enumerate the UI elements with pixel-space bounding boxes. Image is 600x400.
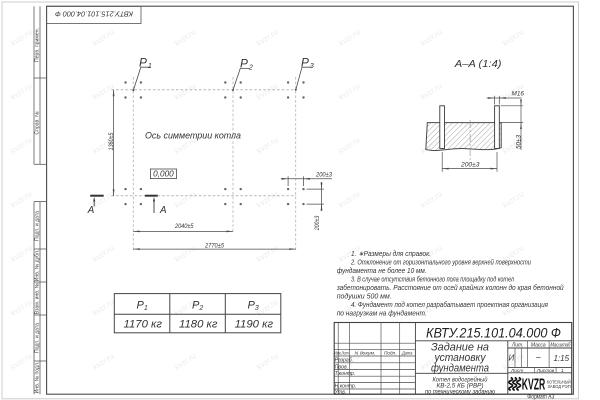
svg-text:A: A — [159, 205, 167, 216]
svg-text:Подп. и дата: Подп. и дата — [35, 211, 41, 241]
svg-text:Изм.: Изм. — [334, 351, 341, 356]
svg-text:подушки 500 мм.: подушки 500 мм. — [337, 293, 392, 301]
svg-text:200±3: 200±3 — [460, 161, 480, 168]
svg-text:1360±5: 1360±5 — [108, 132, 115, 150]
svg-text:Справ. №: Справ. № — [35, 111, 41, 135]
svg-text:Ось симметрии котла: Ось симметрии котла — [145, 130, 241, 140]
svg-text:Инв. № подл.: Инв. № подл. — [35, 362, 41, 394]
svg-text:КВТУ.215.101.04.000 Ф: КВТУ.215.101.04.000 Ф — [426, 325, 561, 340]
svg-text:4. Фундамент под котел разраба: 4. Фундамент под котел разрабатывает про… — [351, 301, 548, 309]
svg-text:Лит.: Лит. — [511, 342, 524, 348]
svg-text:Разраб.: Разраб. — [335, 358, 353, 364]
svg-text:ЗАВОД РЭП: ЗАВОД РЭП — [548, 384, 571, 389]
svg-text:2. Отклонение от горизонтально: 2. Отклонение от горизонтального уровня … — [350, 259, 531, 267]
svg-text:2770±5: 2770±5 — [204, 243, 224, 250]
svg-text:Листов: Листов — [536, 368, 555, 374]
svg-text:0,000: 0,000 — [153, 169, 174, 178]
svg-text:Формат А3: Формат А3 — [527, 393, 554, 400]
svg-text:фундамента не более 10 мм.: фундамента не более 10 мм. — [337, 267, 427, 275]
svg-text:КВТУ.215.101.04.000 Ф: КВТУ.215.101.04.000 Ф — [55, 10, 133, 19]
svg-text:1. ∗Размеры для справок.: 1. ∗Размеры для справок. — [351, 250, 431, 258]
svg-text:по нагрузкам на фундамент.: по нагрузкам на фундамент. — [337, 310, 427, 318]
svg-text:N докум.: N докум. — [355, 351, 376, 356]
svg-text:Лист: Лист — [510, 368, 523, 374]
svg-text:A–A (1:4): A–A (1:4) — [454, 59, 502, 70]
svg-text:Взам. инв. №: Взам. инв. № — [35, 282, 41, 314]
svg-text:200±3: 200±3 — [315, 172, 332, 179]
svg-text:по техническому заданию: по техническому заданию — [425, 388, 495, 395]
svg-text:A: A — [87, 205, 95, 216]
svg-text:Утв.: Утв. — [335, 389, 347, 395]
svg-text:Лист: Лист — [341, 351, 349, 356]
svg-text:2040±5: 2040±5 — [174, 223, 193, 230]
svg-text:Т.контр.: Т.контр. — [335, 371, 356, 377]
svg-text:1190 кг: 1190 кг — [235, 319, 274, 331]
svg-text:забетонировать. Расстояние от: забетонировать. Расстояние от осей крайн… — [336, 284, 564, 292]
svg-text:200±3: 200±3 — [314, 215, 321, 231]
svg-text:Подп.: Подп. — [384, 351, 397, 356]
svg-text:Пров.: Пров. — [335, 364, 348, 370]
svg-text:–: – — [535, 352, 541, 361]
svg-text:Дата: Дата — [401, 351, 413, 356]
svg-text:KVZR: KVZR — [522, 377, 546, 394]
svg-text:Масса: Масса — [531, 342, 546, 348]
svg-text:И: И — [509, 353, 515, 362]
svg-text:3. В случае отсутствия бетонно: 3. В случае отсутствия бетонного пола пл… — [351, 276, 514, 284]
svg-text:1180 кг: 1180 кг — [179, 319, 218, 331]
svg-text:1: 1 — [561, 368, 564, 374]
svg-text:Перв. примен.: Перв. примен. — [35, 28, 41, 62]
svg-text:Подп. и дата: Подп. и дата — [35, 323, 41, 353]
svg-text:1170 кг: 1170 кг — [124, 319, 163, 331]
svg-text:фундамента: фундамента — [431, 363, 489, 375]
svg-text:Масштаб: Масштаб — [550, 342, 570, 348]
svg-text:50±3: 50±3 — [516, 135, 523, 149]
svg-text:Инв. № дубл.: Инв. № дубл. — [35, 250, 41, 282]
svg-text:М16: М16 — [512, 90, 525, 97]
svg-text:1:15: 1:15 — [554, 354, 570, 363]
